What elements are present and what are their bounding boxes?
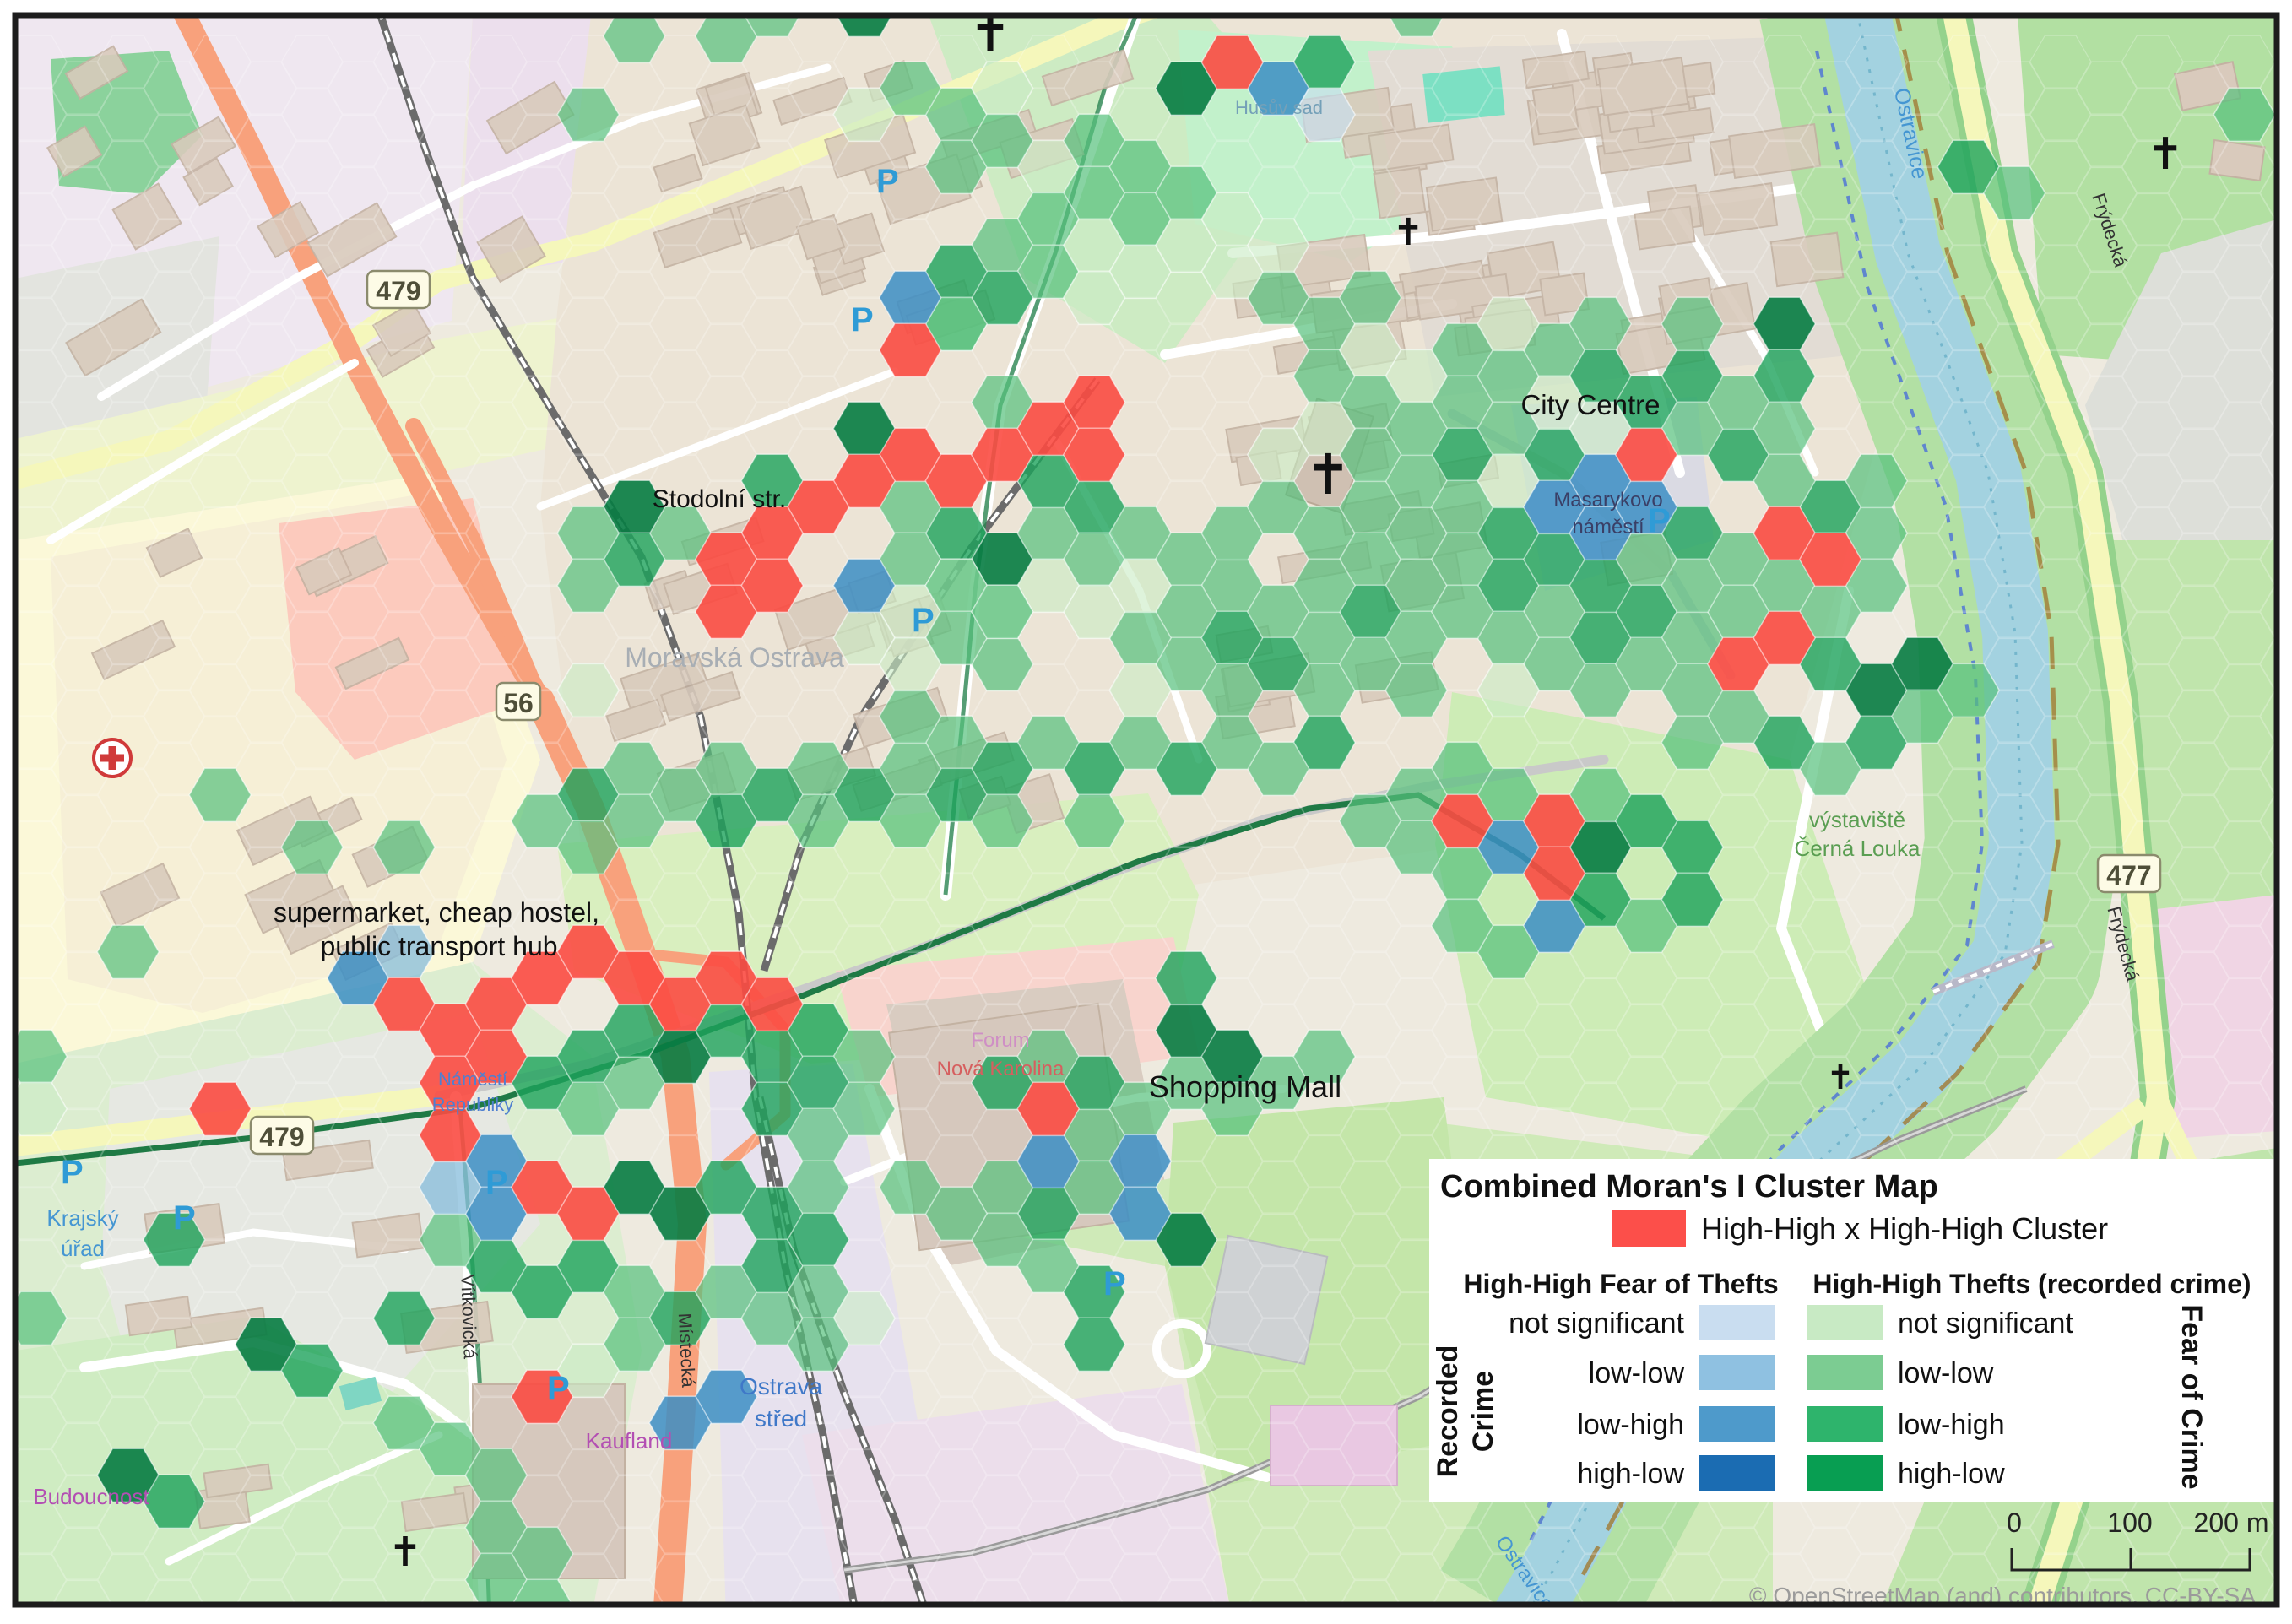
svg-text:střed: střed xyxy=(755,1405,807,1432)
svg-text:Masarykovo: Masarykovo xyxy=(1553,489,1662,512)
svg-text:Krajský: Krajský xyxy=(46,1205,118,1231)
svg-text:P: P xyxy=(851,301,874,338)
svg-text:high-low: high-low xyxy=(1577,1458,1684,1490)
svg-text:200 m: 200 m xyxy=(2194,1508,2269,1538)
svg-text:✝: ✝ xyxy=(1304,443,1351,506)
svg-text:✝: ✝ xyxy=(1393,212,1424,253)
svg-text:P: P xyxy=(912,602,935,639)
svg-text:477: 477 xyxy=(2106,860,2151,890)
svg-text:low-low: low-low xyxy=(1898,1357,1994,1389)
svg-text:úřad: úřad xyxy=(61,1236,105,1261)
svg-text:Fear of Crime: Fear of Crime xyxy=(2176,1304,2208,1489)
svg-text:Republiky: Republiky xyxy=(432,1094,514,1115)
svg-text:P: P xyxy=(547,1370,570,1407)
svg-text:low-high: low-high xyxy=(1577,1409,1684,1441)
svg-text:City Centre: City Centre xyxy=(1520,389,1660,420)
svg-text:56: 56 xyxy=(503,688,534,718)
svg-text:low-high: low-high xyxy=(1898,1409,2005,1441)
svg-text:P: P xyxy=(61,1154,84,1191)
svg-text:High-High Fear of Thefts: High-High Fear of Thefts xyxy=(1463,1269,1778,1299)
svg-text:supermarket, cheap hostel,: supermarket, cheap hostel, xyxy=(274,897,599,928)
svg-text:P: P xyxy=(1103,1265,1126,1302)
svg-text:Budoucnost: Budoucnost xyxy=(33,1484,149,1509)
svg-text:0: 0 xyxy=(2007,1508,2022,1538)
svg-text:✝: ✝ xyxy=(1826,1059,1855,1096)
svg-text:High-High x High-High Cluster: High-High x High-High Cluster xyxy=(1701,1211,2108,1246)
svg-text:Náměstí: Náměstí xyxy=(438,1069,507,1090)
svg-text:Vítkovická: Vítkovická xyxy=(457,1274,481,1360)
svg-text:náměstí: náměstí xyxy=(1572,516,1644,539)
svg-text:P: P xyxy=(173,1199,196,1237)
svg-text:✝: ✝ xyxy=(2147,130,2184,179)
svg-text:479: 479 xyxy=(376,276,420,306)
svg-text:479: 479 xyxy=(259,1122,304,1152)
svg-text:Crime: Crime xyxy=(1467,1371,1499,1452)
svg-text:Nová Karolina: Nová Karolina xyxy=(937,1058,1065,1080)
svg-text:P: P xyxy=(876,163,899,200)
svg-text:Husův sad: Husův sad xyxy=(1235,97,1323,118)
svg-text:low-low: low-low xyxy=(1589,1357,1685,1389)
svg-text:Ostrava: Ostrava xyxy=(740,1373,822,1399)
svg-text:Místecká: Místecká xyxy=(675,1313,700,1389)
svg-text:Recorded: Recorded xyxy=(1432,1345,1464,1478)
svg-text:100: 100 xyxy=(2107,1508,2152,1538)
svg-text:public transport hub: public transport hub xyxy=(320,931,557,961)
svg-text:Forum: Forum xyxy=(971,1029,1029,1052)
svg-text:Černá Louka: Černá Louka xyxy=(1795,836,1921,861)
svg-text:Shopping Mall: Shopping Mall xyxy=(1149,1069,1341,1104)
svg-text:P: P xyxy=(485,1164,508,1201)
svg-text:High-High Thefts (recorded cri: High-High Thefts (recorded crime) xyxy=(1812,1269,2251,1299)
svg-text:Stodolní str.: Stodolní str. xyxy=(653,485,786,513)
svg-text:Kaufland: Kaufland xyxy=(586,1428,673,1453)
svg-text:high-low: high-low xyxy=(1898,1458,2005,1490)
svg-text:not significant: not significant xyxy=(1509,1307,1684,1340)
svg-text:výstaviště: výstaviště xyxy=(1809,807,1905,832)
svg-text:not significant: not significant xyxy=(1898,1307,2073,1340)
svg-text:Moravská Ostrava: Moravská Ostrava xyxy=(625,642,844,673)
svg-text:✝: ✝ xyxy=(388,1530,422,1575)
svg-text:Combined Moran's I Cluster Map: Combined Moran's I Cluster Map xyxy=(1440,1169,1938,1204)
